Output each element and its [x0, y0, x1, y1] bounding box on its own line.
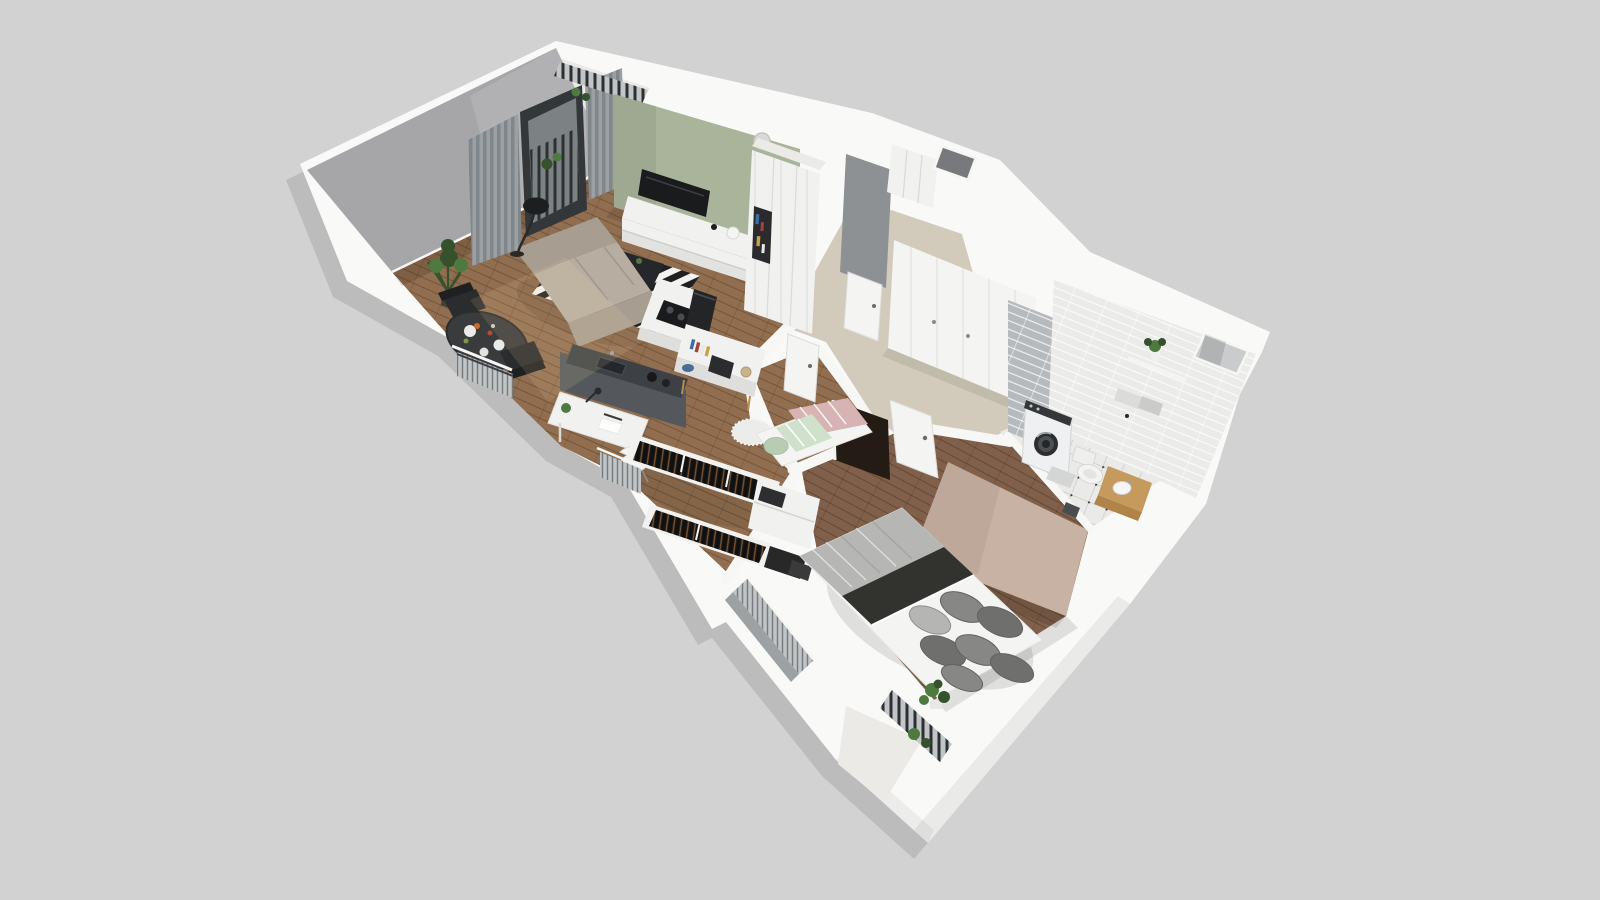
- sink: [1113, 482, 1131, 495]
- kitchenette-part: [662, 379, 670, 387]
- study-nook-part: [561, 403, 571, 413]
- dining-area-part: [464, 339, 469, 344]
- vase: [711, 224, 717, 230]
- doors-part: [872, 304, 876, 308]
- interior-walls-part: [932, 320, 936, 324]
- study-nook-part: [595, 388, 602, 395]
- balcony-bottom-part: [921, 738, 931, 748]
- washing-machine-part: [1030, 405, 1033, 408]
- interior-walls-part: [582, 93, 590, 101]
- floorplan-svg: [0, 0, 1600, 900]
- doors-part: [923, 436, 927, 440]
- bathroom-part: [1144, 338, 1152, 346]
- basket: [741, 367, 751, 377]
- dining-area-part: [480, 348, 489, 357]
- balcony-bottom-part: [908, 728, 920, 740]
- interior-walls-part: [966, 334, 970, 338]
- washing-machine-part: [1042, 440, 1050, 448]
- blue-cloth: [682, 364, 694, 372]
- corner-plant-part: [429, 259, 443, 273]
- bath-plant-pot: [1151, 352, 1159, 361]
- bath-vanity-part: [1128, 480, 1132, 484]
- corner-plant-part: [454, 258, 468, 272]
- living-room-part: [636, 258, 642, 264]
- tall-wardrobe-part: [756, 236, 760, 246]
- bedroom-plant-part: [919, 695, 929, 705]
- dining-area-part: [488, 331, 493, 336]
- balcony-plant: [542, 159, 553, 170]
- door-small-bedroom: [784, 334, 819, 402]
- bathroom-part: [1158, 338, 1166, 346]
- floorplan-render: [0, 0, 1600, 900]
- bedroom-plant-part: [938, 691, 950, 703]
- table-lamp: [727, 227, 739, 239]
- bathroom-part: [1125, 414, 1129, 418]
- entry-niche-wall: [840, 154, 892, 288]
- bookshelf-niche: [752, 206, 772, 264]
- bedroom-plant-part: [934, 680, 943, 689]
- tall-wardrobe-part: [760, 222, 764, 231]
- dining-area-part: [474, 323, 480, 329]
- interior-walls-part: [572, 88, 581, 97]
- corner-plant-part: [441, 239, 455, 253]
- mint-pillow: [764, 438, 788, 455]
- interior-walls-part: [468, 114, 522, 266]
- kitchenette-part: [647, 372, 657, 382]
- kitchenette-part: [678, 314, 685, 321]
- door-living-hall: [844, 272, 882, 341]
- tall-wardrobe-part: [761, 244, 765, 253]
- doors-part: [808, 364, 812, 368]
- kitchenette-part: [667, 307, 674, 314]
- living-room-part: [510, 251, 524, 257]
- tall-wardrobe-part: [755, 214, 759, 224]
- floor-lamp-shade: [523, 198, 549, 215]
- washing-machine-part: [1037, 408, 1040, 411]
- balcony-plant2: [553, 153, 562, 162]
